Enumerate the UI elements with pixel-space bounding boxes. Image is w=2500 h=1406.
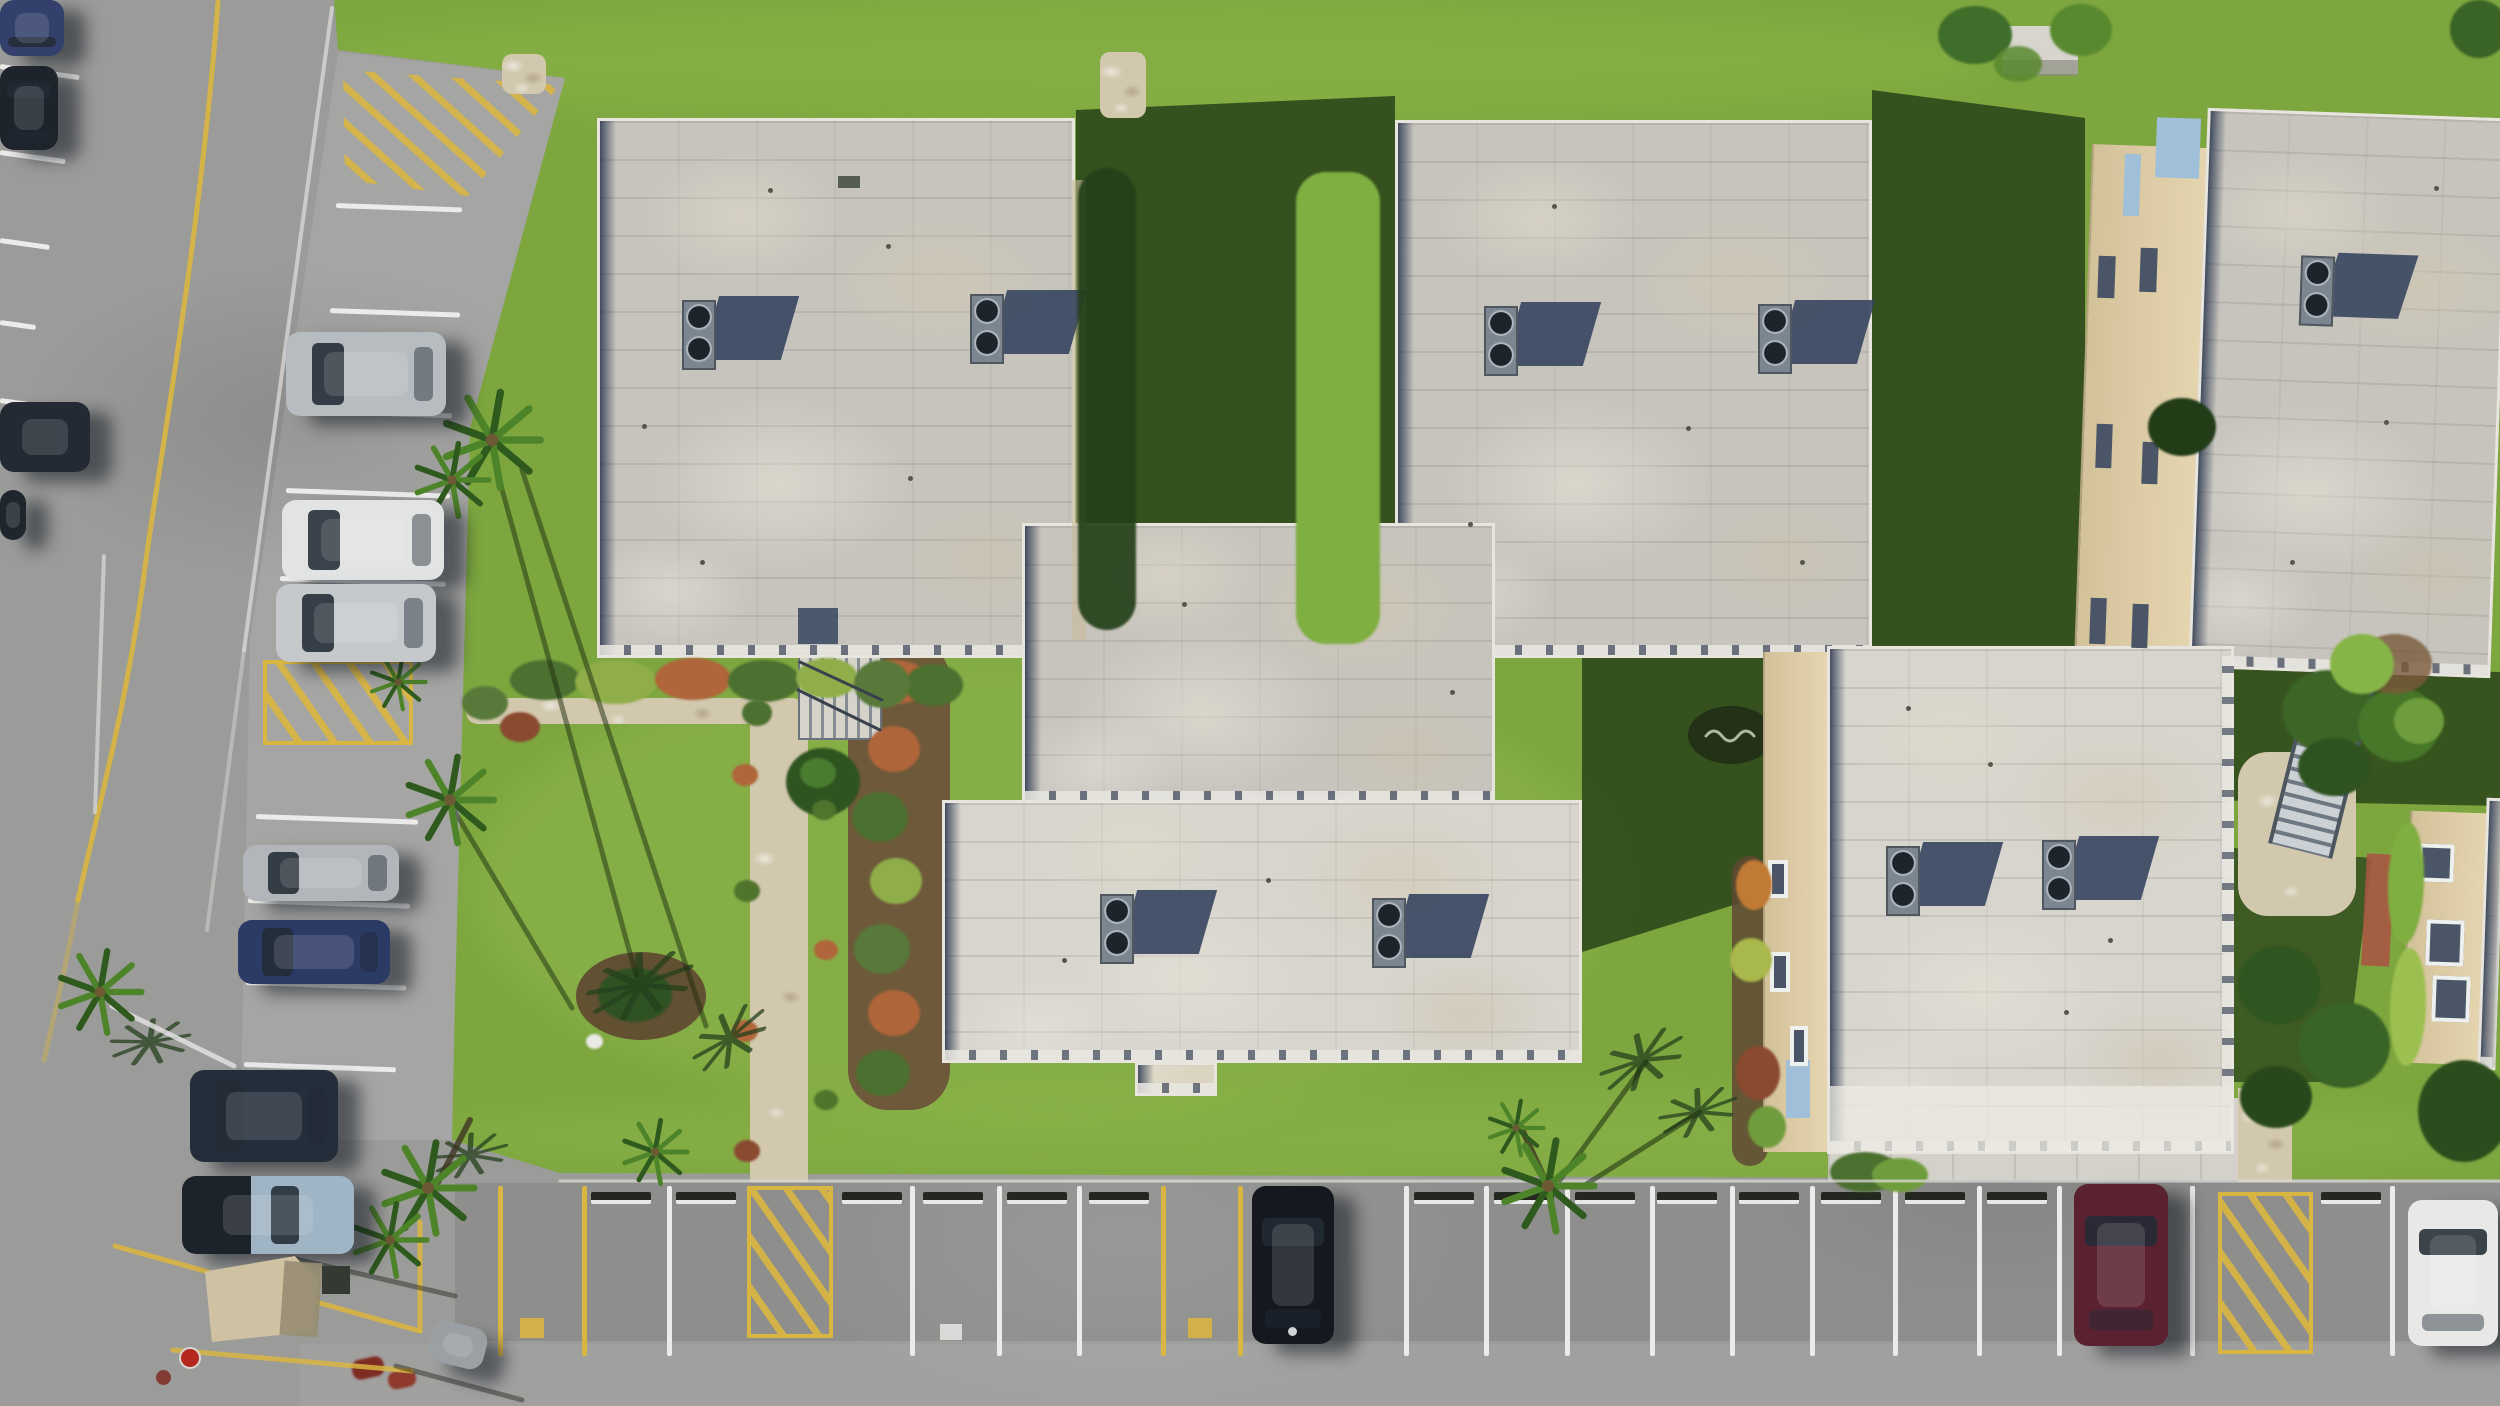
car-glass <box>8 37 57 47</box>
shed-dark-hatch <box>322 1266 350 1294</box>
parked-car-black <box>1252 1186 1334 1344</box>
parked-car-dark-edge <box>0 66 58 150</box>
car-glass <box>2419 1229 2487 1255</box>
car-glass <box>412 514 431 565</box>
parked-car-blue <box>238 920 390 984</box>
car-glass <box>2089 1310 2153 1329</box>
car-glass <box>2085 1216 2156 1245</box>
parked-suv-white <box>282 500 444 580</box>
palm-tree <box>46 938 154 1046</box>
palm-trunk-shadow <box>522 470 706 1026</box>
yellow-curb-diag-2 <box>173 1350 412 1371</box>
car-glass <box>2422 1314 2483 1332</box>
car-glass <box>308 1087 326 1146</box>
pond-ripple <box>1706 731 1754 741</box>
car-emblem <box>1288 1327 1297 1336</box>
parked-sedan-silver <box>276 584 436 662</box>
parked-suv-dark <box>190 1070 338 1162</box>
car-glass <box>214 1082 244 1150</box>
parked-car-blue-edge <box>0 0 64 56</box>
car-glass <box>368 855 387 891</box>
car-glass <box>404 598 423 648</box>
stair-rail <box>798 690 880 730</box>
car-glass <box>360 932 378 973</box>
stair-rail <box>800 662 882 700</box>
palm-tree <box>393 743 507 857</box>
road-edge-white-2 <box>207 650 244 930</box>
palm-trunk-shadow <box>500 482 636 975</box>
parked-pickup-truck <box>182 1176 354 1254</box>
sign-post-shadow <box>156 1370 171 1385</box>
road-edge-west <box>95 556 104 812</box>
palm-tree <box>613 1110 697 1194</box>
car-glass <box>1262 1218 1324 1246</box>
car-glass <box>271 1186 299 1244</box>
parked-car-white <box>2408 1200 2498 1346</box>
car-glass <box>308 510 340 569</box>
car-glass <box>58 411 78 463</box>
road-center-yellow-line <box>78 2 218 900</box>
light-pole-shadow <box>396 1366 522 1400</box>
car-glass <box>1265 1309 1321 1328</box>
car-glass <box>302 594 334 652</box>
car-glass <box>268 852 299 893</box>
stop-sign <box>179 1347 201 1369</box>
aerial-photograph <box>0 0 2500 1406</box>
car-glass <box>414 347 433 401</box>
parked-sedan-silver-2 <box>243 845 399 901</box>
palm-tree <box>1480 1092 1552 1164</box>
car-glass <box>312 343 344 405</box>
car-glass <box>7 83 51 98</box>
car-glass <box>262 928 292 975</box>
parked-car-maroon <box>2074 1184 2168 1346</box>
shed-side-shade <box>279 1261 322 1337</box>
parked-suv-silver <box>286 332 446 416</box>
parked-car-dark-edge-2 <box>0 402 90 472</box>
palm-tree <box>342 1192 438 1288</box>
parked-car-partial-edge <box>0 490 26 540</box>
car-glass <box>9 132 48 142</box>
